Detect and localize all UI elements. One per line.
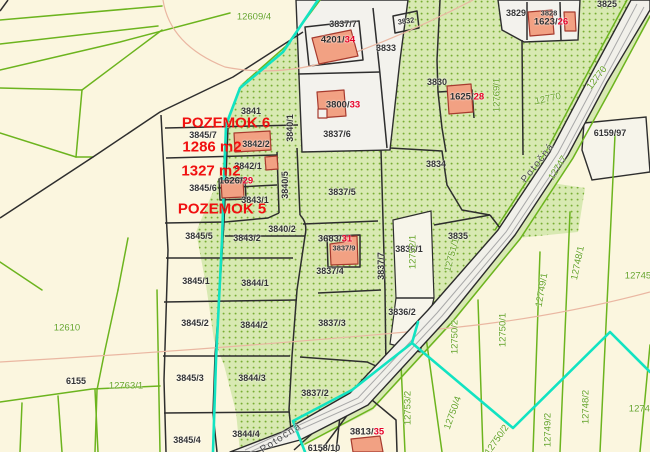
building-1623-26a	[528, 10, 554, 36]
map-graphics-layer	[0, 0, 650, 452]
building-1623-26b	[564, 12, 576, 31]
building-3842-2	[234, 131, 271, 152]
building-1625-28	[447, 84, 473, 114]
cadastral-map-viewport[interactable]: 12609/43837/74201/3438323833382938283825…	[0, 0, 650, 452]
building-3800-notch	[318, 109, 327, 118]
building-3842-1	[265, 156, 278, 170]
building-3813-35	[351, 436, 383, 452]
building-1626-29	[221, 180, 244, 198]
